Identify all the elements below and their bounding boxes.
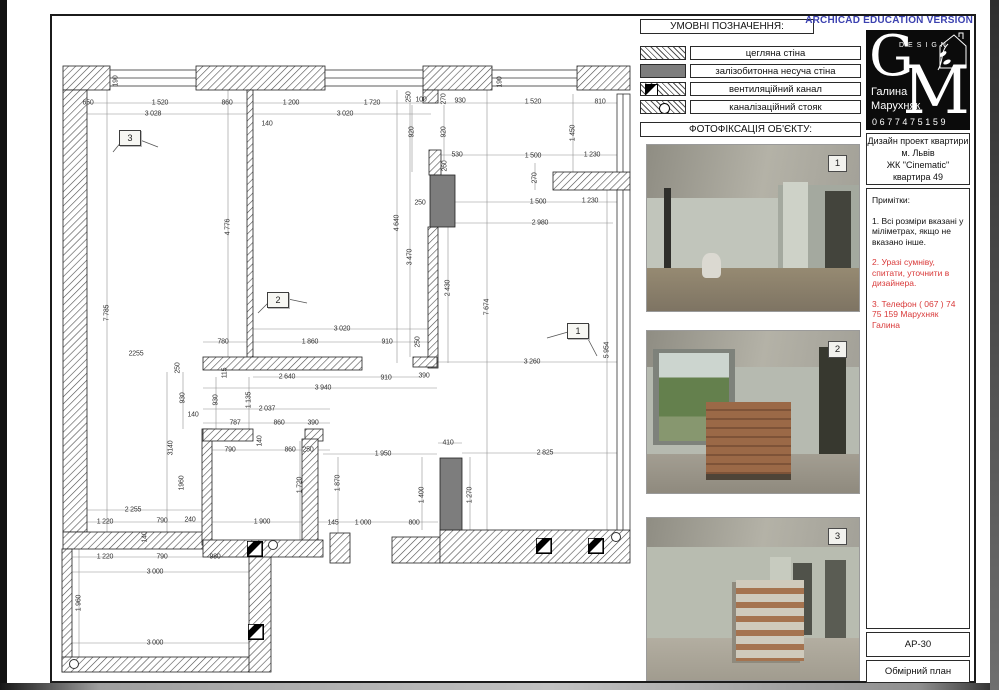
wall-segment xyxy=(202,429,212,545)
dimension-label: 1 220 xyxy=(97,519,114,526)
author-first-name: Галина xyxy=(871,86,907,98)
dimension-label: 140 xyxy=(261,121,272,128)
dimension-label: 1 900 xyxy=(254,519,271,526)
wall-segment xyxy=(429,150,441,175)
note-1: 1. Всі розміри вказані у міліметрах, якщ… xyxy=(872,216,964,248)
concrete-wall-swatch xyxy=(640,64,686,78)
wall-segment xyxy=(428,227,438,368)
vent-icon xyxy=(645,84,658,96)
dimension-label: 930 xyxy=(180,392,187,403)
vent-icon xyxy=(589,539,603,553)
project-info: Дизайн проект квартири м. Львів ЖК "Cine… xyxy=(866,133,970,185)
dimension-label: 2 430 xyxy=(445,280,452,297)
dimension-label: 790 xyxy=(156,554,167,561)
logo: G DESIGN M Галина Марухняк 0677475159 xyxy=(866,30,970,130)
dimension-label: 1 450 xyxy=(570,125,577,142)
vent-icon xyxy=(537,539,551,553)
dimension-label: 1 500 xyxy=(530,199,547,206)
project-line: ЖК "Cinematic" xyxy=(868,159,969,171)
dimension-label: 980 xyxy=(209,554,220,561)
dimension-label: 1 500 xyxy=(525,153,542,160)
wall-segment xyxy=(577,66,630,90)
photo-1-doorway xyxy=(825,191,850,271)
dimension-label: 920 xyxy=(409,126,416,137)
dimension-label: 650 xyxy=(82,100,93,107)
brick-wall-swatch xyxy=(640,46,686,60)
dimension-label: 3 940 xyxy=(315,385,332,392)
dimension-label: 1 720 xyxy=(364,100,381,107)
wall-segment xyxy=(413,357,437,367)
legend-item-concrete: залізобитонна несуча стіна xyxy=(690,64,861,78)
dimension-label: 1 860 xyxy=(302,339,319,346)
wall-segment xyxy=(330,533,350,563)
dimension-label: 790 xyxy=(224,447,235,454)
dimension-label: 100 xyxy=(415,97,426,104)
dimension-label: 3 020 xyxy=(337,111,354,118)
dimension-label: 115 xyxy=(222,368,229,379)
project-line: квартира 49 xyxy=(868,171,969,183)
dimension-label: 790 xyxy=(156,518,167,525)
wall-segment xyxy=(63,66,110,90)
brick-walls xyxy=(62,66,630,672)
concrete-segment xyxy=(440,458,462,530)
wall-segment xyxy=(63,90,87,532)
dimension-label: 2 255 xyxy=(125,507,142,514)
vent-icon xyxy=(249,625,263,639)
dimension-label: 250 xyxy=(302,447,313,454)
dimension-label: 1 520 xyxy=(525,99,542,106)
wall-segment xyxy=(247,90,253,358)
wall-segment xyxy=(302,439,318,545)
photo-1-bucket xyxy=(702,253,721,278)
room-marker-3: 3 xyxy=(119,130,141,146)
dimension-label: 140 xyxy=(142,531,149,542)
dimension-label: 1 400 xyxy=(419,487,426,504)
sheet-name: Обмірний план xyxy=(866,660,970,683)
dimension-label: 1 000 xyxy=(355,520,372,527)
photo-3-brick-stack xyxy=(736,580,804,661)
dimension-label: 920 xyxy=(441,126,448,137)
dimension-label: 860 xyxy=(273,420,284,427)
legend-item-sewer: каналізаційний стояк xyxy=(690,100,861,114)
dimension-label: 2 037 xyxy=(259,406,276,413)
photo-2: 2 xyxy=(646,330,860,494)
sewer-riser-swatch xyxy=(640,100,686,114)
sewer-icon xyxy=(269,541,278,550)
sewer-icon xyxy=(659,103,670,114)
dimension-label: 270 xyxy=(441,93,448,104)
dimension-label: 250 xyxy=(175,362,182,373)
notes-title: Примітки: xyxy=(872,195,964,206)
wall-segment xyxy=(196,66,325,90)
dimension-label: 2 825 xyxy=(537,450,554,457)
dimension-label: 1 520 xyxy=(152,100,169,107)
dimension-label: 3 470 xyxy=(407,249,414,266)
dimension-label: 3 028 xyxy=(145,111,162,118)
dimension-label: 240 xyxy=(184,517,195,524)
dimension-label: 140 xyxy=(257,435,264,446)
dimension-label: 190 xyxy=(113,75,120,86)
wall-segment xyxy=(62,657,250,672)
dimension-label: 390 xyxy=(418,373,429,380)
vent-duct-swatch xyxy=(640,82,686,96)
wall-segment xyxy=(392,537,440,563)
dimension-label: 2 640 xyxy=(279,374,296,381)
dimension-label: 5 954 xyxy=(604,342,611,359)
dimension-label: 810 xyxy=(594,99,605,106)
dimension-label: 1 135 xyxy=(246,392,253,409)
logo-phone: 0677475159 xyxy=(872,117,948,127)
dimension-label: 910 xyxy=(380,375,391,382)
photo-2-doorway xyxy=(819,347,847,464)
dimension-label: 3 000 xyxy=(147,569,164,576)
dimension-label: 3 260 xyxy=(524,359,541,366)
dimension-label: 410 xyxy=(442,440,453,447)
dimension-label: 250 xyxy=(406,91,413,102)
vent-icon xyxy=(248,542,262,556)
photo-1-marker: 1 xyxy=(828,155,847,172)
project-line: Дизайн проект квартири xyxy=(868,135,969,147)
window xyxy=(617,190,630,530)
photo-1: 1 xyxy=(646,144,860,312)
photo-2-marker: 2 xyxy=(828,341,847,358)
dimension-label: 910 xyxy=(381,339,392,346)
concrete-segment xyxy=(430,175,455,227)
dimension-label: 250 xyxy=(415,336,422,347)
dimension-label: 7 785 xyxy=(104,305,111,322)
dimension-label: 860 xyxy=(284,447,295,454)
note-2: 2. Уразі сумніву, спитати, уточнити в ди… xyxy=(872,257,964,289)
wall-segment xyxy=(203,429,253,441)
dimension-label: 260 xyxy=(442,160,449,171)
photos-title: ФОТОФІКСАЦІЯ ОБ'ЄКТУ: xyxy=(640,122,861,137)
dimension-label: 1 870 xyxy=(335,475,342,492)
dimension-label: 390 xyxy=(307,420,318,427)
legend-item-brick: цегляна стіна xyxy=(690,46,861,60)
photo-3-doorway-2 xyxy=(825,560,846,638)
project-line: м. Львів xyxy=(868,147,969,159)
dimension-label: 3 020 xyxy=(334,326,351,333)
dimension-label: 780 xyxy=(217,339,228,346)
wall-segment xyxy=(62,549,72,672)
room-marker-1: 1 xyxy=(567,323,589,339)
dimension-label: 140 xyxy=(187,412,198,419)
dimension-label: 250 xyxy=(414,200,425,207)
dimension-label: 2255 xyxy=(129,351,144,358)
dimension-label: 145 xyxy=(327,520,338,527)
dimension-label: 1 230 xyxy=(584,152,601,159)
dimension-label: 1 200 xyxy=(283,100,300,107)
dimension-label: 1 720 xyxy=(297,477,304,494)
note-3: 3. Телефон ( 067 ) 74 75 159 Марухняк Га… xyxy=(872,299,964,331)
room-marker-2: 2 xyxy=(267,292,289,308)
notes-box: Примітки: 1. Всі розміри вказані у мілім… xyxy=(866,188,970,629)
dimension-label: 1960 xyxy=(179,476,186,491)
wall-segment xyxy=(63,532,203,549)
dimension-label: 530 xyxy=(451,152,462,159)
dimension-label: 930 xyxy=(213,394,220,405)
photo-3-marker: 3 xyxy=(828,528,847,545)
photo-2-brick-pallet xyxy=(706,402,791,473)
dimension-label: 1 230 xyxy=(582,198,599,205)
dimension-label: 270 xyxy=(532,172,539,183)
logo-author: Галина Марухняк xyxy=(871,85,920,113)
house-icon xyxy=(934,32,968,72)
dimension-label: 2 980 xyxy=(532,220,549,227)
sewer-icon xyxy=(70,660,79,669)
photo-1-pillar xyxy=(783,182,808,278)
dimension-label: 1 220 xyxy=(97,554,114,561)
photo-1-floor xyxy=(647,268,859,311)
leaf-icon xyxy=(943,58,952,65)
dimension-label: 1 950 xyxy=(375,451,392,458)
dimension-label: 4 776 xyxy=(225,219,232,236)
wall-segment xyxy=(423,66,492,90)
windows xyxy=(110,70,630,530)
dimension-label: 3140 xyxy=(168,441,175,456)
archicad-watermark: ARCHICAD EDUCATION VERSION xyxy=(700,15,973,26)
drawing-sheet: 6501 5208601 2001 7209301 5208103 0283 0… xyxy=(0,0,999,690)
page-right-edge xyxy=(990,0,999,690)
wall-segment xyxy=(553,172,630,190)
dimension-label: 3 000 xyxy=(147,640,164,647)
dimension-label: 860 xyxy=(221,100,232,107)
dimension-label: 1 270 xyxy=(467,487,474,504)
sheet-code: АР-30 xyxy=(866,632,970,657)
page-bottom-edge xyxy=(0,683,999,690)
legend-item-vent: вентиляційний канал xyxy=(690,82,861,96)
window xyxy=(617,94,630,172)
dimension-label: 7 674 xyxy=(484,299,491,316)
photo-3: 3 xyxy=(646,517,860,681)
dimension-label: 930 xyxy=(454,98,465,105)
dimension-label: 1 960 xyxy=(76,595,83,612)
sewer-icon xyxy=(612,533,621,542)
dimension-label: 800 xyxy=(408,520,419,527)
dimension-label: 190 xyxy=(497,76,504,87)
wall-segment xyxy=(249,549,271,672)
author-last-name: Марухняк xyxy=(871,100,920,112)
dimension-label: 787 xyxy=(229,420,240,427)
dimension-label: 4 640 xyxy=(394,215,401,232)
marker-leaders xyxy=(113,140,597,356)
